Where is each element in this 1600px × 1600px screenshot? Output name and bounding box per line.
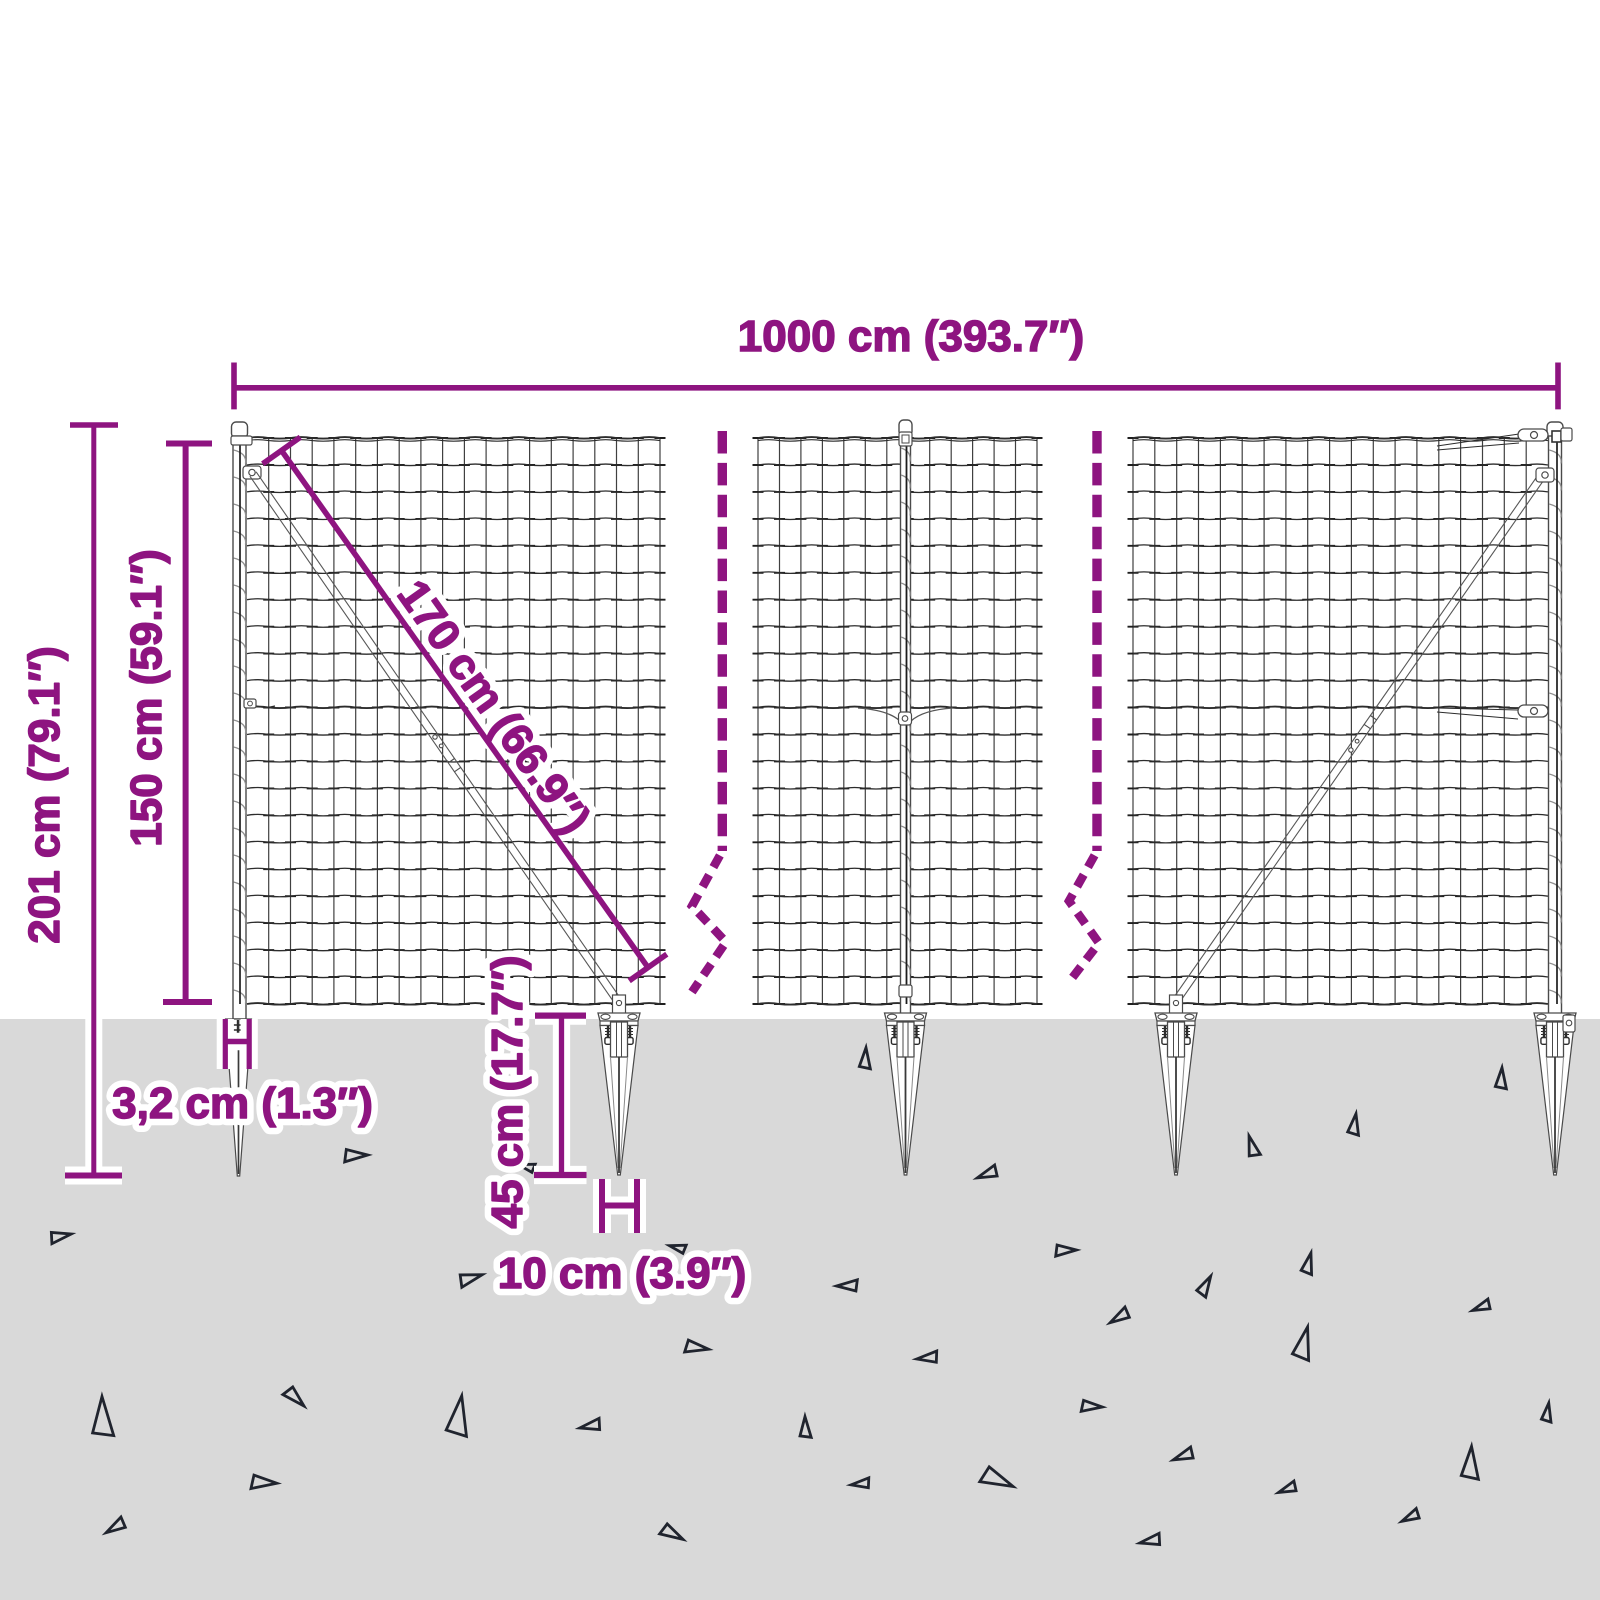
svg-text:150 cm (59.1″): 150 cm (59.1″) <box>122 549 171 846</box>
svg-text:10 cm (3.9″): 10 cm (3.9″) <box>498 1249 747 1298</box>
svg-text:201 cm (79.1″): 201 cm (79.1″) <box>20 646 69 943</box>
svg-text:45 cm (17.7″): 45 cm (17.7″) <box>483 955 532 1228</box>
svg-text:3,2 cm (1.3″): 3,2 cm (1.3″) <box>112 1079 373 1128</box>
svg-text:1000 cm (393.7″): 1000 cm (393.7″) <box>738 312 1084 361</box>
